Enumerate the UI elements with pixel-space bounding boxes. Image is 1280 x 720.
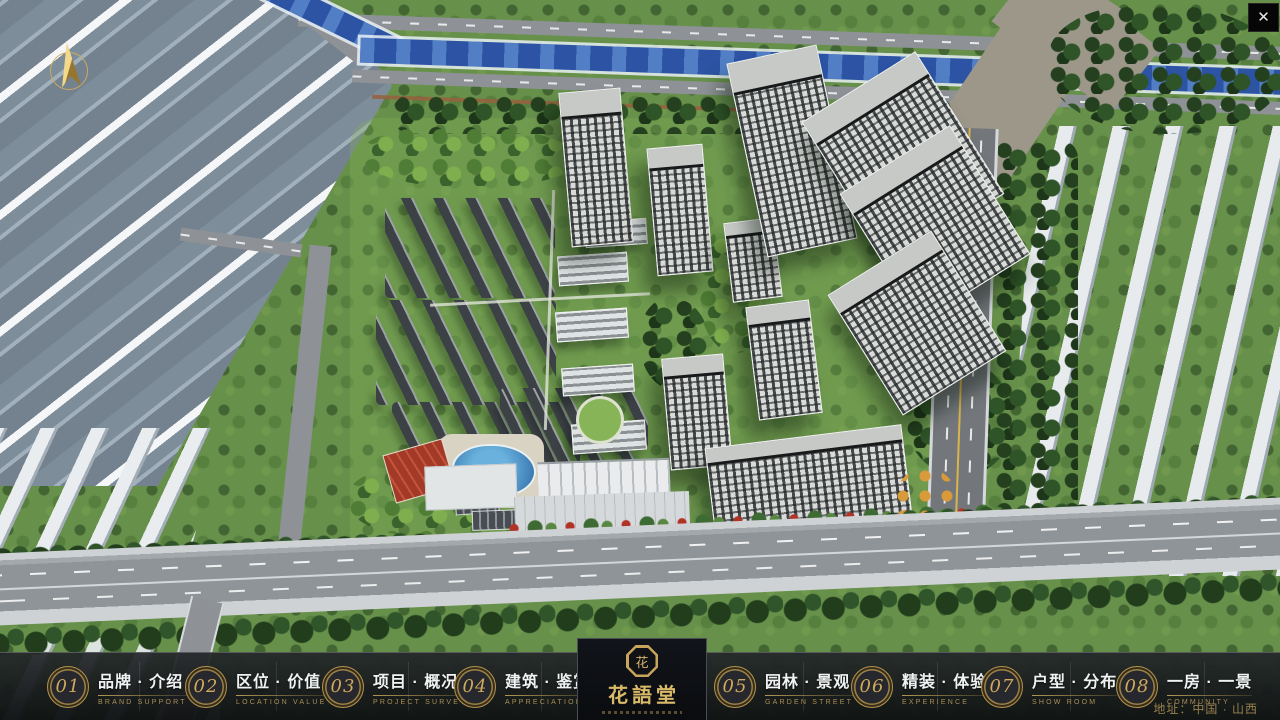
- nav-gold-rule: [1167, 695, 1252, 696]
- midrise-block: [561, 364, 635, 397]
- nav-number-badge: 06: [851, 666, 893, 708]
- nav-gold-rule: [1032, 695, 1117, 696]
- aerial-masterplan-view[interactable]: [0, 0, 1280, 720]
- tree-grove-northeast: [1048, 4, 1280, 134]
- nav-label-en: BRAND SUPPORT: [98, 699, 187, 706]
- nav-item-garden[interactable]: 05 园林 · 景观 GARDEN STREET: [714, 653, 853, 720]
- nav-label-en: SHOW ROOM: [1032, 699, 1117, 706]
- nav-number-badge: 04: [454, 666, 496, 708]
- nav-label-zh: 区位 · 价值: [236, 668, 326, 692]
- nav-number-badge: 05: [714, 666, 756, 708]
- project-logo-panel[interactable]: 花 花語堂: [577, 638, 707, 720]
- nav-label-zh: 精装 · 体验: [902, 668, 987, 692]
- nav-label-en: LOCATION VALUE: [236, 699, 326, 706]
- nav-item-floorplans[interactable]: 07 户型 · 分布 SHOW ROOM: [981, 653, 1117, 720]
- project-tagline: [602, 711, 682, 714]
- nav-label-zh: 项目 · 概况: [373, 668, 467, 692]
- nav-label-zh: 品牌 · 介绍: [98, 668, 187, 692]
- nav-label-zh: 一房 · 一景: [1167, 668, 1252, 692]
- residential-tower: [647, 144, 714, 276]
- nav-label-zh: 户型 · 分布: [1032, 668, 1117, 692]
- nav-item-interior[interactable]: 06 精装 · 体验 EXPERIENCE: [851, 653, 987, 720]
- nav-item-brand-intro[interactable]: 01 品牌 · 介绍 BRAND SUPPORT: [47, 653, 187, 720]
- circular-garden: [576, 396, 624, 444]
- nav-gold-rule: [765, 695, 853, 696]
- tree-grove-community-nw: [362, 126, 577, 188]
- nav-number-badge: 02: [185, 666, 227, 708]
- nav-label-en: PROJECT SURVEY: [373, 699, 467, 706]
- project-name: 花語堂: [604, 679, 680, 708]
- project-address: 地址：中国 · 山西: [1153, 700, 1258, 717]
- nav-item-location-value[interactable]: 02 区位 · 价值 LOCATION VALUE: [185, 653, 326, 720]
- nav-number-badge: 08: [1116, 666, 1158, 708]
- compass-north-indicator: [46, 42, 94, 98]
- nav-item-project-survey[interactable]: 03 项目 · 概况 PROJECT SURVEY: [322, 653, 467, 720]
- presentation-screen: ✕ 01 品牌 · 介绍 BRAND SUPPORT 02 区位 · 价值 LO…: [0, 0, 1280, 720]
- seal-character: 花: [629, 648, 656, 675]
- nav-item-architecture[interactable]: 04 建筑 · 鉴赏 APPRECIATION: [454, 653, 590, 720]
- midrise-block: [555, 308, 629, 343]
- nav-label-en: EXPERIENCE: [902, 699, 987, 706]
- nav-gold-rule: [902, 695, 987, 696]
- residential-tower: [745, 300, 822, 421]
- nav-number-badge: 01: [47, 666, 89, 708]
- courtyard-cluster-1: [385, 198, 555, 298]
- close-icon: ✕: [1257, 10, 1270, 25]
- nav-number-badge: 03: [322, 666, 364, 708]
- retail-building: [424, 463, 517, 510]
- nav-label-zh: 园林 · 景观: [765, 668, 853, 692]
- nav-number-badge: 07: [981, 666, 1023, 708]
- nav-label-en: GARDEN STREET: [765, 699, 853, 706]
- nav-gold-rule: [373, 695, 467, 696]
- close-button[interactable]: ✕: [1248, 3, 1279, 32]
- nav-gold-rule: [98, 695, 187, 696]
- midrise-block: [557, 252, 629, 287]
- nav-gold-rule: [236, 695, 326, 696]
- seal-emblem-icon: 花: [626, 645, 658, 677]
- west-vertical-road: [276, 245, 331, 566]
